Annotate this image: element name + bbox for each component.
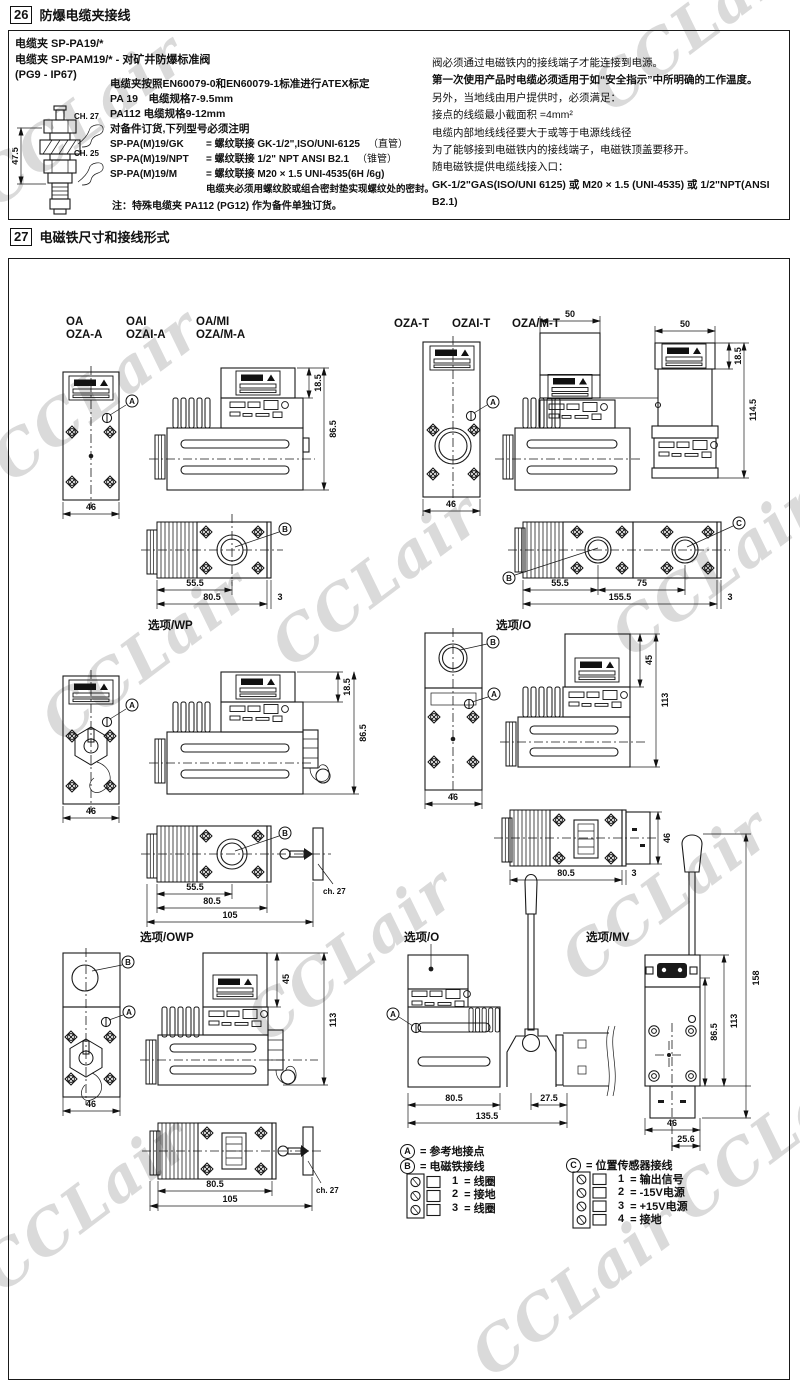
- model-desc: = 螺纹联接 1/2" NPT ANSI B2.1: [206, 152, 349, 167]
- dim-50: 50: [680, 319, 690, 329]
- note-line: 阀必须通过电磁铁内的接线端子才能连接到电源。: [432, 55, 790, 72]
- legend-b-text: = 电磁铁接线: [420, 1158, 484, 1174]
- atex-line: 电缆夹按照EN60079-0和EN60079-1标准进行ATEX标定: [110, 77, 434, 92]
- svg-text:A: A: [390, 1010, 396, 1019]
- legend-b: B = 电磁铁接线: [400, 1158, 484, 1174]
- ref-a: A: [123, 1006, 135, 1018]
- legend-a: A = 参考地接点: [400, 1143, 484, 1159]
- dim-55-5: 55.5: [186, 882, 204, 892]
- legend-c-pins: 1= 输出信号 2= -15V电源 3= +15V电源 4= 接地: [618, 1172, 688, 1226]
- clamp-model-1: 电缆夹 SP-PA19/*: [15, 37, 210, 53]
- model-code: SP-PA(M)19/M: [110, 167, 206, 182]
- ref-a: A: [487, 396, 499, 408]
- note-line: 随电磁铁提供电缆线接入口：: [432, 159, 790, 176]
- svg-text:C: C: [736, 519, 742, 528]
- plug-with-cap: [268, 1030, 296, 1084]
- legend-b-pins: 1= 线圈 2= 接地 3= 线圈: [452, 1174, 496, 1215]
- dim-27-5: 27.5: [540, 1093, 558, 1103]
- section27-title: 电磁铁尺寸和接线形式: [39, 227, 169, 246]
- front-view: A 46: [63, 670, 138, 823]
- note-line: 接点的线缆最小截面积 =4mm²: [432, 107, 790, 124]
- clamp-specs: 电缆夹按照EN60079-0和EN60079-1标准进行ATEX标定 PA 19…: [110, 77, 434, 197]
- pa19-line: PA 19 电缆规格7-9.5mm: [110, 92, 434, 107]
- dim-86-5: 86.5: [358, 724, 368, 742]
- model-paren: （锥管）: [357, 152, 397, 167]
- dim-18-5: 18.5: [342, 678, 352, 696]
- dim-18-5: 18.5: [733, 347, 743, 365]
- dim-155-5: 155.5: [609, 592, 632, 602]
- dimensions: 158 113 86.5 46 25.6: [645, 834, 761, 1151]
- wrench-icon: [78, 125, 103, 147]
- bottom-view: B ch. 27 55.5 80.5 105: [141, 826, 346, 927]
- dim-80-5: 80.5: [203, 592, 221, 602]
- svg-text:A: A: [491, 690, 497, 699]
- dim-46: 46: [86, 1099, 96, 1109]
- ref-b: B: [279, 523, 291, 535]
- sensor-connector-icon: [572, 1171, 612, 1229]
- pin-row: 3= 线圈: [452, 1201, 496, 1215]
- dim-113: 113: [328, 1013, 338, 1028]
- ch27-label: CH. 27: [74, 112, 99, 121]
- dim-46: 46: [667, 1118, 677, 1128]
- cable-clamp-drawing: 47.5 CH. 27 CH. 25: [12, 104, 118, 220]
- pa112-line: PA112 电缆规格9-12mm: [110, 107, 434, 122]
- dim-105: 105: [222, 1194, 237, 1204]
- note-line: GK-1/2"GAS(ISO/UNI 6125) 或 M20 × 1.5 (UN…: [432, 177, 790, 212]
- svg-text:B: B: [282, 829, 288, 838]
- note-line: 第一次使用产品时电缆必须适用于如“安全指示”中所明确的工作温度。: [432, 72, 790, 89]
- front-view: B A 46: [63, 948, 135, 1116]
- dim-158: 158: [751, 970, 761, 985]
- dim-46: 46: [86, 502, 96, 512]
- model-paren: （直管）: [368, 137, 408, 152]
- dim-25-6: 25.6: [677, 1134, 695, 1144]
- coil-connector-icon: [406, 1173, 446, 1219]
- dim-80-5: 80.5: [203, 896, 221, 906]
- bottom-view: B C 55.5 75 155.5 3: [503, 517, 745, 609]
- ref-b: B: [487, 636, 499, 648]
- dim-80-5: 80.5: [206, 1179, 224, 1189]
- model-row: SP-PA(M)19/M = 螺纹联接 M20 × 1.5 UNI-4535(6…: [110, 167, 434, 182]
- dim-3: 3: [727, 592, 732, 602]
- dim-135-5: 135.5: [476, 1111, 499, 1121]
- ref-c: C: [733, 517, 745, 529]
- side-view: 50: [495, 309, 658, 490]
- svg-text:B: B: [282, 525, 288, 534]
- ref-a: A: [387, 1008, 399, 1020]
- ref-a: A: [126, 699, 138, 711]
- wrench-ch27: CH. 27: [74, 112, 103, 147]
- dim-86-5: 86.5: [709, 1023, 719, 1041]
- dim-47-5: 47.5: [12, 147, 20, 165]
- section27-header: 27 电磁铁尺寸和接线形式: [10, 227, 169, 246]
- model-desc: = 螺纹联接 M20 × 1.5 UNI-4535(6H /6g): [206, 167, 384, 182]
- clamp-model-2: 电缆夹 SP-PAM19/* - 对矿井防爆标准阀: [15, 53, 210, 69]
- dim-18-5: 18.5: [313, 374, 323, 392]
- dim-55-5: 55.5: [186, 578, 204, 588]
- dim-55-5: 55.5: [551, 578, 569, 588]
- ref-b: B: [279, 827, 291, 839]
- dim-80-5: 80.5: [445, 1093, 463, 1103]
- ch27-wrench-size: ch. 27: [316, 1186, 339, 1195]
- ref-b: B: [503, 572, 515, 584]
- note-line: 为了能够接到电磁铁内的接线端子，电磁铁顶盖要移开。: [432, 142, 790, 159]
- dim-75: 75: [637, 578, 647, 588]
- wrench-icon: [78, 163, 103, 185]
- section26-number: 26: [10, 6, 32, 24]
- svg-text:A: A: [126, 1008, 132, 1017]
- side-view: 45 113: [500, 634, 670, 767]
- group1-drawing: A 46 18.5 86.5 B 55.5: [55, 308, 365, 610]
- dim-46: 46: [448, 792, 458, 802]
- dim-113: 113: [729, 1014, 739, 1029]
- group7-mv-drawing: 158 113 86.5 46 25.6: [583, 828, 800, 1168]
- svg-text:B: B: [125, 958, 131, 967]
- front-view: A 46: [423, 336, 499, 516]
- note-line: 电缆内部地线线径要大于或等于电源线线径: [432, 125, 790, 142]
- wrench-ch25: CH. 25: [74, 149, 103, 185]
- bottom-view: ch. 27 80.5 105: [142, 1123, 339, 1211]
- seal-note: 电缆夹必须用螺纹胶或组合密封垫实现螺纹处的密封。: [206, 182, 434, 197]
- model-row: SP-PA(M)19/GK = 螺纹联接 GK-1/2",ISO/UNI-612…: [110, 137, 434, 152]
- side-view-with-lever: A 80.5 27.5 135.5: [387, 875, 615, 1129]
- dim-3: 3: [277, 592, 282, 602]
- group5-owp-drawing: B A 46 45 113: [40, 915, 395, 1245]
- pin-row: 4= 接地: [618, 1213, 688, 1227]
- dim-46: 46: [446, 499, 456, 509]
- dim-50: 50: [565, 309, 575, 319]
- dim-45: 45: [281, 974, 291, 984]
- front-view-with-lever: [645, 835, 702, 1153]
- model-desc: = 螺纹联接 GK-1/2",ISO/UNI-6125: [206, 137, 360, 152]
- svg-text:B: B: [490, 638, 496, 647]
- clamp-body: [40, 106, 80, 214]
- side-view: 18.5 86.5: [149, 672, 368, 794]
- bottom-view: B 55.5 80.5 3: [141, 514, 291, 609]
- group3-wp-drawing: A 46 18.5 86.5: [55, 612, 385, 934]
- dim-86-5: 86.5: [328, 420, 338, 438]
- front-view: A 46: [63, 366, 138, 519]
- order-line: 对备件订货,下列型号必须注明: [110, 122, 434, 137]
- model-row: SP-PA(M)19/NPT = 螺纹联接 1/2" NPT ANSI B2.1…: [110, 152, 434, 167]
- dim-45: 45: [644, 655, 654, 665]
- svg-text:A: A: [129, 397, 135, 406]
- ref-a-icon: A: [400, 1144, 415, 1159]
- section26-title: 防爆电缆夹接线: [39, 5, 130, 24]
- wiring-notes: 阀必须通过电磁铁内的接线端子才能连接到电源。 第一次使用产品时电缆必须适用于如“…: [432, 55, 790, 212]
- ref-a: A: [488, 688, 500, 700]
- svg-text:A: A: [129, 701, 135, 710]
- model-code: SP-PA(M)19/GK: [110, 137, 206, 152]
- ref-a: A: [126, 395, 138, 407]
- svg-text:B: B: [506, 574, 512, 583]
- svg-text:A: A: [490, 398, 496, 407]
- section26-header: 26 防爆电缆夹接线: [10, 5, 130, 24]
- front-view: B A 46: [425, 628, 500, 809]
- legend-a-text: = 参考地接点: [420, 1143, 484, 1159]
- ref-b: B: [122, 956, 134, 968]
- side-view: 45 113: [140, 953, 338, 1085]
- ch27-wrench-size: ch. 27: [323, 887, 346, 896]
- model-code: SP-PA(M)19/NPT: [110, 152, 206, 167]
- clamp-footnote: 注：特殊电缆夹 PA112 (PG12) 作为备件单独订货。: [112, 197, 342, 212]
- note-line: 另外，当地线由用户提供时，必须满足：: [432, 90, 790, 107]
- clamp-height-dim: 47.5: [12, 128, 46, 184]
- ch25-label: CH. 25: [74, 149, 99, 158]
- ref-b-icon: B: [400, 1159, 415, 1174]
- side-view: 18.5 86.5: [149, 368, 338, 490]
- dim-114-5: 114.5: [748, 399, 758, 421]
- dim-46: 46: [86, 806, 96, 816]
- plug-with-cap: [303, 730, 330, 783]
- rear-view: 50 18.5 114.5: [652, 319, 758, 478]
- dim-113: 113: [660, 693, 670, 708]
- section27-number: 27: [10, 228, 32, 246]
- group2-drawing: A 46 50 50 18.5 11: [390, 308, 800, 610]
